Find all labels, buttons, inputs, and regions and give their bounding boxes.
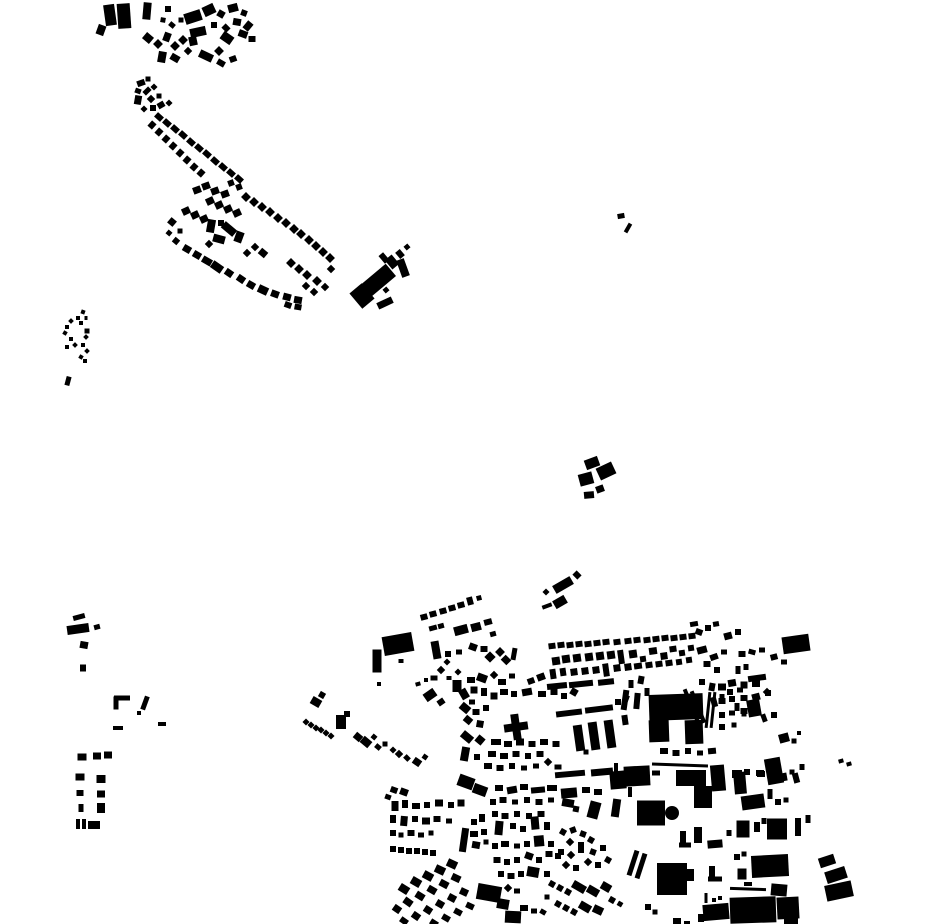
- building-footprint: [465, 902, 475, 911]
- building-footprint: [429, 918, 439, 924]
- building-footprint: [218, 162, 228, 172]
- building-footprint: [403, 243, 410, 250]
- building-footprint: [742, 852, 747, 857]
- building-footprint: [467, 677, 475, 683]
- building-footprint: [551, 689, 558, 695]
- building-footprint: [734, 854, 740, 860]
- building-footprint: [569, 826, 577, 834]
- building-footprint: [304, 235, 314, 245]
- building-footprint: [595, 862, 601, 868]
- cluster-row-north-of-town: [542, 570, 582, 609]
- building-footprint: [170, 124, 180, 134]
- building-footprint: [524, 797, 530, 803]
- building-footprint: [434, 864, 446, 875]
- building-footprint: [430, 640, 441, 659]
- building-footprint: [584, 652, 593, 661]
- building-footprint: [514, 889, 520, 894]
- building-footprint: [549, 669, 556, 680]
- cluster-farmstead-west: [349, 243, 410, 309]
- building-footprint: [395, 249, 405, 259]
- building-footprint: [214, 46, 224, 56]
- building-footprint: [80, 309, 85, 314]
- building-footprint: [592, 666, 600, 674]
- building-footprint: [593, 640, 601, 647]
- building-footprint: [604, 720, 617, 749]
- cluster-town-east-blocks: [621, 676, 805, 808]
- building-footprint: [698, 914, 704, 922]
- building-footprint: [730, 887, 766, 891]
- building-footprint: [466, 596, 474, 605]
- building-footprint: [669, 646, 677, 653]
- building-footprint: [554, 900, 562, 908]
- building-footprint: [571, 880, 587, 894]
- building-footprint: [558, 849, 564, 855]
- building-footprint: [470, 831, 478, 837]
- building-footprint: [561, 693, 567, 699]
- building-footprint: [595, 484, 605, 493]
- building-footprint: [221, 23, 230, 32]
- building-footprint: [739, 651, 746, 657]
- building-footprint: [657, 863, 687, 895]
- building-footprint: [784, 918, 798, 924]
- building-footprint: [708, 748, 716, 755]
- building-footprint: [473, 709, 480, 715]
- building-footprint: [637, 801, 665, 826]
- building-footprint: [69, 337, 73, 341]
- building-footprint: [273, 213, 283, 223]
- building-footprint: [312, 276, 322, 286]
- building-footprint: [500, 797, 507, 803]
- building-footprint: [150, 105, 156, 111]
- building-footprint: [652, 763, 708, 768]
- building-footprint: [594, 789, 602, 795]
- building-footprint: [713, 621, 720, 627]
- building-footprint: [456, 650, 462, 655]
- building-footprint: [205, 196, 215, 206]
- building-footprint: [140, 105, 147, 112]
- building-footprint: [542, 588, 549, 595]
- building-footprint: [585, 704, 614, 713]
- building-footprint: [751, 854, 789, 878]
- building-footprint: [540, 739, 548, 745]
- building-footprint: [179, 18, 184, 23]
- building-footprint: [406, 848, 412, 854]
- building-footprint: [741, 708, 748, 714]
- building-footprint: [775, 799, 781, 805]
- building-footprint: [97, 803, 105, 813]
- building-footprint: [676, 770, 706, 786]
- building-footprint: [415, 681, 421, 686]
- building-footprint: [104, 752, 112, 759]
- building-footprint: [790, 770, 795, 775]
- building-footprint: [506, 786, 517, 795]
- building-footprint: [167, 217, 177, 227]
- building-footprint: [414, 848, 420, 854]
- building-footprint: [474, 734, 485, 745]
- cluster-ribbon-road-village: [134, 77, 244, 184]
- building-footprint: [382, 632, 415, 656]
- building-footprint: [240, 9, 248, 17]
- building-footprint: [539, 908, 547, 915]
- building-footprint: [460, 746, 470, 761]
- building-footprint: [249, 197, 259, 207]
- building-footprint: [202, 149, 212, 159]
- building-footprint: [652, 771, 660, 776]
- building-footprint: [411, 911, 422, 921]
- building-footprint: [584, 750, 589, 755]
- building-footprint: [551, 656, 560, 665]
- cluster-isolated-pair-north: [617, 213, 632, 233]
- building-footprint: [383, 742, 388, 747]
- building-footprint: [806, 815, 811, 823]
- building-footprint: [557, 642, 565, 649]
- building-footprint: [771, 883, 788, 896]
- building-footprint: [604, 856, 612, 864]
- building-footprint: [548, 841, 554, 847]
- building-footprint: [552, 576, 574, 594]
- building-footprint: [652, 636, 660, 643]
- building-footprint: [471, 687, 478, 694]
- building-footprint: [504, 859, 510, 865]
- building-footprint: [752, 679, 760, 687]
- building-footprint: [727, 679, 736, 687]
- building-footprint: [205, 240, 213, 248]
- building-footprint: [748, 649, 756, 656]
- building-footprint: [566, 838, 574, 846]
- building-footprint: [156, 101, 165, 110]
- building-footprint: [526, 866, 540, 878]
- building-footprint: [410, 876, 423, 888]
- building-footprint: [744, 882, 752, 886]
- building-footprint: [562, 861, 570, 869]
- building-footprint: [302, 282, 310, 290]
- building-footprint: [588, 722, 601, 751]
- building-footprint: [450, 873, 461, 883]
- building-footprint: [694, 827, 702, 843]
- building-footprint: [665, 660, 673, 667]
- cluster-scatter-west-mid: [66, 613, 100, 671]
- building-footprint: [645, 688, 650, 696]
- building-footprint: [795, 818, 801, 836]
- building-footprint: [624, 638, 632, 645]
- building-footprint: [481, 646, 488, 652]
- building-footprint: [688, 645, 695, 652]
- building-footprint: [370, 733, 377, 740]
- building-footprint: [578, 901, 592, 914]
- building-footprint: [114, 697, 119, 710]
- building-footprint: [520, 826, 526, 832]
- building-footprint: [525, 753, 531, 759]
- building-footprint: [84, 348, 90, 354]
- building-footprint: [645, 662, 653, 669]
- building-footprint: [586, 800, 601, 819]
- building-footprint: [741, 682, 748, 689]
- building-footprint: [561, 798, 574, 808]
- building-footprint: [491, 739, 501, 745]
- building-footprint: [459, 887, 469, 897]
- building-footprint: [201, 3, 216, 17]
- building-footprint: [645, 904, 651, 910]
- building-footprint: [93, 753, 101, 760]
- building-footprint: [78, 754, 87, 761]
- building-footprint: [165, 6, 171, 12]
- building-footprint: [536, 857, 542, 863]
- building-footprint: [770, 653, 778, 661]
- building-footprint: [428, 625, 437, 632]
- building-footprint: [284, 301, 293, 309]
- building-footprint: [649, 720, 670, 743]
- building-footprint: [412, 803, 420, 809]
- building-footprint: [459, 828, 469, 853]
- building-footprint: [737, 821, 750, 838]
- building-footprint: [778, 732, 790, 743]
- building-footprint: [694, 786, 712, 808]
- building-footprint: [390, 786, 399, 794]
- building-footprint: [559, 828, 567, 836]
- building-footprint: [456, 774, 475, 791]
- building-footprint: [420, 613, 428, 621]
- building-footprint: [134, 88, 141, 95]
- building-footprint: [617, 650, 625, 665]
- building-footprint: [495, 647, 505, 657]
- building-footprint: [453, 624, 469, 636]
- building-footprint: [757, 771, 765, 777]
- building-footprint: [633, 637, 641, 644]
- building-footprint: [429, 610, 437, 618]
- building-footprint: [488, 751, 496, 757]
- building-footprint: [396, 258, 410, 278]
- building-footprint: [513, 751, 520, 757]
- building-footprint: [570, 668, 578, 676]
- building-footprint: [579, 830, 587, 838]
- building-footprint: [447, 676, 452, 680]
- building-footprint: [714, 667, 720, 673]
- building-footprint: [327, 265, 335, 273]
- building-footprint: [686, 869, 694, 881]
- building-footprint: [81, 343, 85, 347]
- building-footprint: [236, 274, 247, 284]
- building-footprint: [696, 645, 707, 654]
- building-footprint: [707, 839, 723, 848]
- building-footprint: [282, 293, 292, 302]
- building-footprint: [82, 819, 86, 829]
- building-footprint: [165, 99, 172, 106]
- building-footprint: [147, 120, 156, 129]
- building-footprint: [93, 624, 100, 630]
- building-footprint: [453, 907, 463, 916]
- building-footprint: [712, 898, 716, 902]
- building-footprint: [484, 840, 489, 845]
- building-footprint: [142, 86, 151, 95]
- building-footprint: [471, 841, 480, 849]
- building-footprint: [423, 905, 434, 915]
- building-footprint: [555, 770, 585, 779]
- building-footprint: [547, 682, 568, 690]
- building-footprint: [670, 635, 678, 642]
- building-footprint: [62, 330, 67, 335]
- building-footprint: [764, 757, 784, 785]
- building-footprint: [78, 354, 83, 359]
- building-footprint: [524, 841, 530, 847]
- building-footprint: [243, 249, 251, 257]
- building-footprint: [655, 661, 663, 668]
- building-footprint: [559, 668, 566, 677]
- building-footprint: [781, 634, 810, 655]
- cluster-town-west-arm: [302, 688, 445, 801]
- building-footprint: [158, 722, 166, 726]
- building-footprint: [776, 896, 799, 919]
- building-footprint: [198, 49, 214, 62]
- building-footprint: [434, 816, 441, 822]
- building-footprint: [735, 703, 740, 711]
- building-footprint: [64, 376, 71, 386]
- building-footprint: [768, 789, 773, 799]
- building-footprint: [325, 253, 335, 263]
- building-footprint: [514, 811, 520, 817]
- building-footprint: [498, 679, 506, 685]
- building-footprint: [402, 897, 413, 908]
- building-footprint: [483, 705, 489, 711]
- building-footprint: [562, 904, 570, 912]
- building-footprint: [673, 750, 680, 756]
- building-footprint: [242, 20, 253, 31]
- building-footprint: [730, 896, 777, 924]
- building-footprint: [258, 248, 269, 259]
- building-footprint: [136, 79, 146, 87]
- building-footprint: [183, 9, 203, 25]
- building-footprint: [735, 629, 741, 635]
- building-footprint: [192, 250, 202, 260]
- building-footprint: [399, 833, 404, 838]
- building-footprint: [470, 622, 482, 632]
- building-footprint: [697, 751, 703, 756]
- building-footprint: [390, 815, 396, 823]
- building-footprint: [613, 664, 621, 672]
- building-footprint: [232, 18, 241, 26]
- building-footprint: [251, 243, 259, 251]
- building-footprint: [695, 628, 704, 636]
- building-footprint: [423, 688, 438, 702]
- building-footprint: [686, 657, 693, 664]
- building-footprint: [162, 32, 172, 43]
- building-footprint: [800, 764, 805, 770]
- building-footprint: [220, 189, 230, 198]
- building-footprint: [509, 674, 515, 679]
- building-footprint: [182, 155, 191, 164]
- cluster-town-south-west: [390, 797, 561, 924]
- building-footprint: [399, 659, 404, 663]
- building-footprint: [435, 800, 443, 807]
- building-footprint: [302, 270, 312, 280]
- building-footprint: [705, 893, 708, 903]
- building-footprint: [504, 884, 512, 892]
- building-footprint: [581, 667, 589, 675]
- building-footprint: [600, 881, 613, 893]
- circular-building-footprint: [665, 806, 679, 820]
- building-footprint: [621, 715, 628, 726]
- building-footprint: [490, 671, 498, 679]
- building-footprint: [573, 725, 586, 752]
- building-footprint: [762, 818, 767, 824]
- building-footprint: [294, 264, 304, 274]
- building-footprint: [765, 690, 771, 696]
- building-footprint: [97, 791, 105, 798]
- building-footprint: [210, 156, 220, 166]
- building-footprint: [538, 691, 546, 697]
- building-footprint: [710, 764, 726, 791]
- building-footprint: [150, 83, 157, 90]
- building-footprint: [220, 31, 235, 45]
- building-footprint: [289, 224, 299, 234]
- building-footprint: [246, 280, 256, 290]
- building-footprint: [719, 724, 725, 730]
- building-footprint: [211, 22, 217, 28]
- building-footprint: [624, 223, 632, 234]
- building-footprint: [572, 570, 581, 579]
- building-footprint: [494, 821, 503, 836]
- building-footprint: [453, 680, 462, 692]
- building-footprint: [584, 858, 592, 866]
- building-footprint: [569, 687, 579, 697]
- building-footprint: [214, 200, 224, 210]
- building-footprint: [72, 342, 78, 348]
- building-footprint: [296, 229, 306, 239]
- building-footprint: [76, 316, 80, 320]
- building-footprint: [661, 635, 669, 642]
- building-footprint: [390, 846, 396, 852]
- building-footprint: [496, 898, 510, 910]
- building-footprint: [611, 799, 621, 818]
- building-footprint: [65, 325, 69, 329]
- building-footprint: [500, 689, 508, 695]
- building-footprint: [422, 849, 428, 855]
- building-footprint: [399, 916, 409, 924]
- building-footprint: [437, 666, 445, 674]
- building-footprint: [476, 720, 484, 728]
- building-footprint: [536, 672, 546, 681]
- building-footprint: [232, 208, 242, 218]
- building-footprint: [226, 168, 236, 178]
- building-footprint: [153, 39, 163, 49]
- building-footprint: [190, 210, 200, 220]
- building-footprint: [447, 893, 457, 903]
- building-footprint: [573, 865, 579, 871]
- building-footprint: [157, 94, 162, 99]
- building-footprint: [73, 613, 86, 621]
- building-footprint: [83, 334, 89, 340]
- building-footprint: [165, 229, 172, 236]
- building-footprint: [483, 618, 492, 626]
- building-footprint: [142, 2, 151, 20]
- building-footprint: [194, 143, 204, 153]
- building-footprint: [146, 77, 151, 82]
- building-footprint: [398, 847, 404, 853]
- building-footprint: [137, 711, 141, 715]
- building-footprint: [160, 17, 166, 23]
- building-footprint: [732, 723, 737, 728]
- building-footprint: [384, 794, 391, 801]
- building-footprint: [77, 790, 84, 796]
- building-footprint: [80, 665, 86, 672]
- building-footprint: [481, 688, 487, 696]
- cluster-town-northwest: [373, 595, 518, 692]
- cluster-scatter-west-mid2: [113, 696, 166, 731]
- building-footprint: [729, 711, 735, 716]
- building-footprint: [637, 676, 644, 685]
- building-footprint: [210, 186, 220, 195]
- building-footprint: [738, 869, 747, 880]
- building-footprint: [492, 843, 498, 849]
